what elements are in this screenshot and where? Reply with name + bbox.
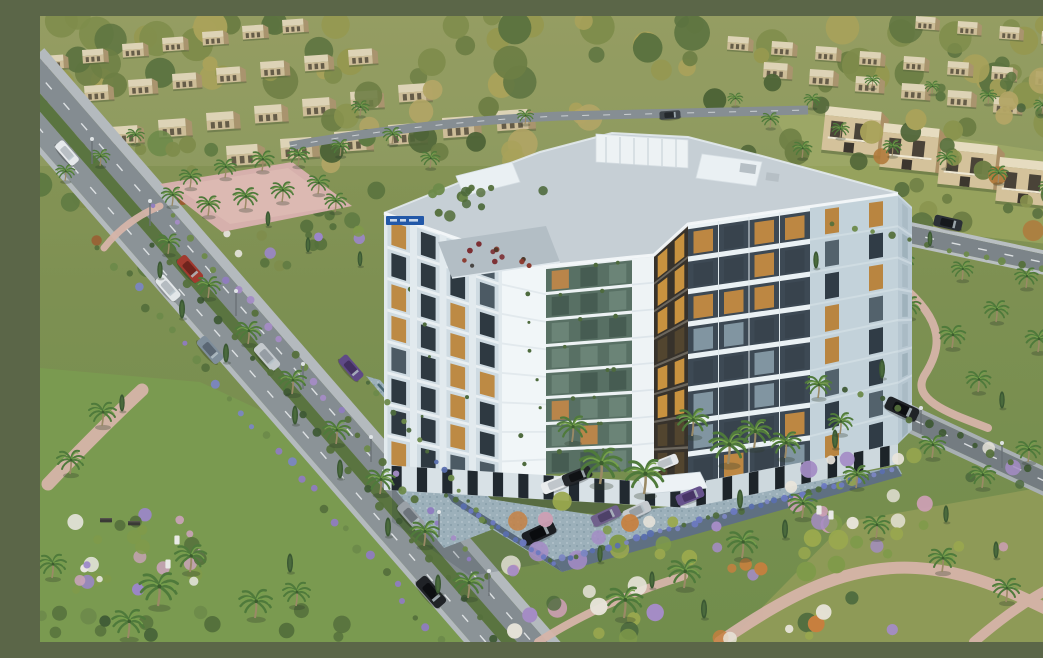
flower-bush — [907, 237, 911, 241]
tree-blob — [478, 97, 499, 118]
flower-bush — [222, 277, 229, 284]
flower-bush — [444, 493, 448, 497]
tree-blob — [1032, 208, 1043, 219]
tree-blob — [847, 517, 859, 529]
villa — [727, 36, 754, 53]
park-bench — [828, 511, 833, 520]
villa — [162, 36, 189, 53]
tree-blob — [798, 547, 810, 559]
tree-blob — [1015, 480, 1024, 489]
tree-blob — [50, 627, 62, 639]
flower-bush — [633, 534, 640, 541]
tree-blob — [538, 186, 547, 195]
flower-bush — [871, 472, 876, 477]
tree-blob — [72, 586, 80, 594]
tree-blob — [590, 598, 608, 616]
flower-bush — [366, 551, 375, 560]
flower-bush — [821, 483, 827, 489]
flower-bush — [275, 336, 281, 342]
flower-bush — [605, 545, 612, 552]
flower-bush — [765, 499, 770, 504]
tree-blob — [492, 259, 498, 265]
flower-bush — [355, 433, 361, 439]
tree-blob — [583, 585, 596, 598]
flower-bush — [479, 517, 485, 523]
flower-bush — [894, 405, 901, 412]
flower-bush — [238, 410, 244, 416]
flower-bush — [110, 263, 118, 271]
flower-bush — [171, 213, 176, 218]
flower-bush — [441, 467, 447, 473]
flower-bush — [781, 495, 788, 502]
tree-blob — [96, 576, 102, 582]
flower-bush — [364, 445, 371, 452]
tree-blob — [493, 46, 527, 80]
flower-bush — [167, 259, 173, 265]
villa — [242, 24, 269, 41]
tree-blob — [444, 210, 455, 221]
tree-blob — [805, 632, 813, 640]
tree-blob — [418, 48, 446, 76]
flower-bush — [453, 497, 459, 503]
tree-blob — [461, 187, 471, 197]
flower-bush — [249, 424, 254, 429]
villa — [809, 69, 840, 88]
flower-bush — [344, 467, 351, 474]
flower-bush — [379, 458, 387, 466]
villa — [957, 21, 982, 37]
flower-bush — [880, 396, 885, 401]
tree-blob — [367, 182, 385, 200]
tree-blob — [633, 33, 663, 63]
flower-bush — [373, 390, 379, 396]
building-sign — [386, 216, 424, 225]
flower-bush — [263, 431, 271, 439]
tree-blob — [329, 223, 336, 230]
flower-bush — [409, 538, 414, 543]
flower-bush — [151, 204, 156, 209]
tree-blob — [754, 562, 767, 575]
tree-blob — [165, 142, 180, 157]
tree-blob — [433, 183, 445, 195]
flower-bush — [870, 229, 875, 234]
flower-bush — [559, 554, 566, 561]
flower-bush — [529, 547, 534, 552]
villa — [859, 51, 886, 68]
tree-blob — [204, 616, 220, 632]
tree-blob — [52, 606, 67, 621]
tree-blob — [905, 109, 926, 130]
flower-bush — [448, 475, 455, 482]
tree-blob — [906, 448, 921, 463]
tree-blob — [99, 615, 110, 626]
tree-blob — [488, 185, 494, 191]
park-bench — [165, 560, 170, 569]
flower-bush — [730, 508, 737, 515]
tree-blob — [828, 556, 846, 574]
tree-blob — [467, 248, 473, 254]
flower-bush — [957, 432, 964, 439]
flower-bush — [320, 505, 329, 514]
park-bench — [100, 518, 112, 522]
flower-bush — [383, 568, 391, 576]
tree-blob — [75, 575, 86, 586]
tree-blob — [727, 564, 736, 573]
flower-bush — [463, 546, 468, 551]
tree-blob — [305, 232, 312, 239]
flower-bush — [211, 380, 220, 389]
tree-blob — [538, 512, 553, 527]
tree-blob — [91, 235, 101, 245]
tree-blob — [860, 121, 883, 144]
tree-blob — [265, 247, 276, 258]
flower-bush — [906, 417, 913, 424]
flower-bush — [484, 573, 491, 580]
flower-bush — [411, 495, 419, 503]
flower-bush — [675, 526, 680, 531]
flower-bush — [1008, 459, 1014, 465]
villa — [254, 104, 289, 126]
flower-bush — [288, 457, 297, 466]
flower-bush — [568, 555, 574, 561]
tree-blob — [628, 576, 647, 595]
tree-blob — [917, 496, 933, 512]
tree-blob — [494, 248, 499, 253]
flower-bush — [298, 476, 305, 483]
tree-blob — [1003, 203, 1013, 213]
villa — [202, 30, 229, 47]
flower-bush — [264, 323, 272, 331]
tree-blob — [808, 537, 817, 546]
facade-pier — [632, 255, 654, 471]
tree-blob — [943, 120, 963, 140]
tree-blob — [300, 220, 313, 233]
tree-blob — [800, 461, 817, 478]
villa — [815, 46, 842, 63]
tree-blob — [478, 203, 485, 210]
tree-blob — [891, 514, 906, 529]
tree-blob — [203, 56, 218, 71]
flower-bush — [275, 448, 282, 455]
flower-bush — [468, 508, 473, 513]
flower-bush — [398, 486, 406, 494]
tree-blob — [999, 542, 1008, 551]
tree-blob — [423, 80, 443, 100]
flower-bush — [880, 469, 885, 474]
tree-blob — [527, 263, 532, 268]
flower-bush — [427, 507, 434, 514]
flower-bush — [214, 316, 223, 325]
flower-bush — [399, 598, 405, 604]
flower-bush — [548, 558, 552, 562]
tree-blob — [890, 527, 903, 540]
flower-bush — [998, 257, 1006, 265]
flower-bush — [852, 226, 858, 232]
tree-blob — [127, 530, 141, 544]
tree-blob — [589, 47, 605, 63]
tree-blob — [553, 492, 572, 511]
tree-blob — [953, 541, 964, 552]
flower-bush — [95, 245, 100, 250]
flower-bush — [574, 555, 579, 560]
flower-bush — [311, 485, 318, 492]
flower-bush — [425, 450, 429, 454]
flower-bush — [247, 296, 255, 304]
tree-blob — [522, 607, 537, 622]
villa — [947, 90, 978, 109]
flower-bush — [888, 232, 895, 239]
flower-bush — [552, 561, 556, 565]
tree-blob — [647, 604, 664, 621]
tree-blob — [1023, 220, 1043, 241]
flower-bush — [292, 351, 300, 359]
flower-bush — [984, 255, 990, 261]
flower-bush — [421, 623, 429, 631]
tree-blob — [476, 241, 482, 247]
flower-bush — [771, 497, 777, 503]
villa — [999, 26, 1024, 42]
villa — [128, 78, 159, 97]
tree-blob — [988, 166, 1006, 184]
tree-blob — [115, 520, 126, 531]
flower-bush — [425, 555, 433, 563]
tree-blob — [204, 143, 218, 157]
tree-blob — [919, 520, 929, 530]
tree-blob — [850, 152, 868, 170]
tree-blob — [80, 608, 96, 624]
tree-blob — [593, 628, 604, 639]
flower-bush — [252, 310, 259, 317]
villa — [172, 72, 203, 91]
flower-bush — [366, 381, 370, 385]
flower-bush — [889, 467, 894, 472]
tree-blob — [499, 254, 504, 259]
flower-bush — [490, 520, 495, 525]
villa — [282, 18, 309, 35]
flower-bush — [457, 489, 461, 493]
flower-bush — [339, 407, 345, 413]
flower-bush — [666, 527, 671, 532]
villa — [947, 61, 974, 78]
flower-bush — [210, 267, 216, 273]
tree-blob — [651, 60, 672, 81]
tree-blob — [682, 51, 697, 66]
flower-bush — [857, 391, 863, 397]
park-bench — [816, 506, 821, 515]
tree-blob — [470, 264, 474, 268]
tree-blob — [314, 233, 323, 242]
flower-bush — [157, 313, 164, 320]
facade-recess — [654, 224, 688, 478]
flower-bush — [250, 356, 255, 361]
tree-blob — [936, 91, 946, 101]
park-bench — [128, 521, 140, 525]
tree-blob — [476, 188, 485, 197]
flower-bush — [201, 363, 210, 372]
flower-bush — [473, 507, 478, 512]
villa — [903, 56, 930, 73]
flower-bush — [964, 251, 970, 257]
flower-bush — [384, 399, 390, 405]
villa — [771, 41, 798, 58]
tree-blob — [507, 565, 518, 576]
tree-blob — [887, 489, 900, 502]
tree-blob — [466, 132, 486, 152]
flower-bush — [541, 554, 546, 559]
flower-bush — [149, 243, 154, 248]
flower-bush — [395, 581, 401, 587]
flower-bush — [722, 514, 727, 519]
tree-blob — [845, 591, 858, 604]
facade-corner-tower — [502, 254, 546, 490]
flower-bush — [947, 248, 952, 253]
tree-blob — [764, 74, 782, 92]
flower-bush — [192, 355, 201, 364]
flower-bush — [682, 523, 687, 528]
tree-blob — [667, 517, 678, 528]
flower-bush — [175, 220, 180, 225]
park-bench — [174, 536, 179, 545]
flower-bush — [816, 486, 822, 492]
flower-bush — [406, 428, 411, 433]
flower-bush — [169, 327, 176, 334]
flower-bush — [624, 540, 629, 545]
tree-blob — [712, 543, 722, 553]
main-building — [384, 133, 912, 508]
tree-blob — [508, 511, 527, 530]
flower-bush — [413, 615, 418, 620]
flower-bush — [320, 395, 326, 401]
tree-blob — [456, 36, 476, 56]
tree-blob — [883, 549, 892, 558]
flower-bush — [451, 535, 456, 540]
tree-blob — [942, 194, 952, 204]
flower-bush — [310, 378, 318, 386]
flower-bush — [696, 516, 703, 523]
flower-bush — [466, 499, 470, 503]
flower-bush — [267, 369, 274, 376]
flower-bush — [641, 534, 648, 541]
flower-bush — [183, 279, 192, 288]
tree-blob — [175, 516, 184, 525]
flower-bush — [343, 525, 349, 531]
tree-blob — [826, 455, 835, 464]
villa — [206, 111, 241, 133]
tree-blob — [850, 536, 863, 549]
flower-bush — [446, 575, 451, 580]
flower-bush — [401, 419, 406, 424]
tree-blob — [83, 561, 90, 568]
tree-blob — [1020, 195, 1033, 208]
tree-blob — [235, 250, 243, 258]
tree-blob — [816, 604, 832, 620]
flower-bush — [536, 550, 541, 555]
tree-blob — [333, 616, 351, 634]
villa — [122, 42, 149, 59]
flower-bush — [141, 304, 150, 313]
roof-bulkhead — [596, 134, 688, 168]
aerial-rendering-screenshot: Bird's-eye rendering of an 8-storey whit… — [40, 16, 1043, 642]
flower-bush — [986, 449, 995, 458]
tree-blob — [462, 258, 467, 263]
tree-blob — [546, 596, 561, 611]
tree-blob — [189, 577, 198, 586]
tree-blob — [840, 452, 855, 467]
tree-blob — [67, 514, 83, 530]
villa — [260, 60, 291, 79]
flower-bush — [467, 557, 472, 562]
flower-bush — [1018, 261, 1026, 269]
flower-bush — [202, 253, 208, 259]
tree-blob — [643, 516, 655, 528]
flower-bush — [331, 519, 339, 527]
flower-bush — [390, 410, 396, 416]
flower-bush — [434, 460, 439, 465]
tree-blob — [186, 530, 193, 537]
flower-bush — [749, 504, 755, 510]
flower-bush — [615, 543, 621, 549]
flower-bush — [713, 512, 720, 519]
tree-blob — [279, 623, 295, 639]
tree-blob — [519, 259, 524, 264]
flower-bush — [972, 443, 977, 448]
tree-blob — [655, 549, 666, 560]
tree-blob — [829, 530, 849, 550]
tree-blob — [144, 628, 158, 642]
flower-bush — [503, 531, 509, 537]
flower-bush — [658, 529, 663, 534]
flower-bush — [182, 341, 187, 346]
flower-bush — [758, 503, 763, 508]
flower-bush — [513, 537, 518, 542]
flower-bush — [187, 235, 194, 242]
villa — [216, 66, 247, 85]
flower-bush — [375, 502, 384, 511]
flower-bush — [313, 428, 322, 437]
flower-bush — [496, 525, 501, 530]
villa — [304, 54, 335, 73]
flower-bush — [135, 283, 144, 292]
flower-bush — [345, 416, 352, 423]
tree-blob — [796, 562, 816, 582]
tree-blob — [1017, 103, 1026, 112]
flower-bush — [127, 270, 133, 276]
tree-blob — [909, 178, 924, 193]
tree-blob — [435, 209, 443, 217]
flower-bush — [830, 222, 835, 227]
flower-bush — [490, 525, 494, 529]
tree-blob — [462, 199, 471, 208]
flower-bush — [227, 396, 232, 401]
villa — [901, 83, 932, 102]
flower-bush — [417, 437, 422, 442]
tree-blob — [257, 230, 267, 240]
tree-blob — [103, 575, 111, 583]
flower-bush — [706, 515, 710, 519]
tree-blob — [283, 261, 292, 270]
tree-blob — [179, 136, 196, 153]
flower-bush — [831, 484, 836, 489]
flower-bush — [839, 482, 845, 488]
flower-bush — [352, 545, 361, 554]
villa — [915, 16, 940, 32]
tree-blob — [603, 526, 612, 535]
tree-blob — [194, 606, 207, 619]
tree-blob — [621, 514, 639, 532]
flower-bush — [299, 411, 306, 418]
flower-bush — [925, 419, 934, 428]
tree-blob — [353, 226, 364, 237]
